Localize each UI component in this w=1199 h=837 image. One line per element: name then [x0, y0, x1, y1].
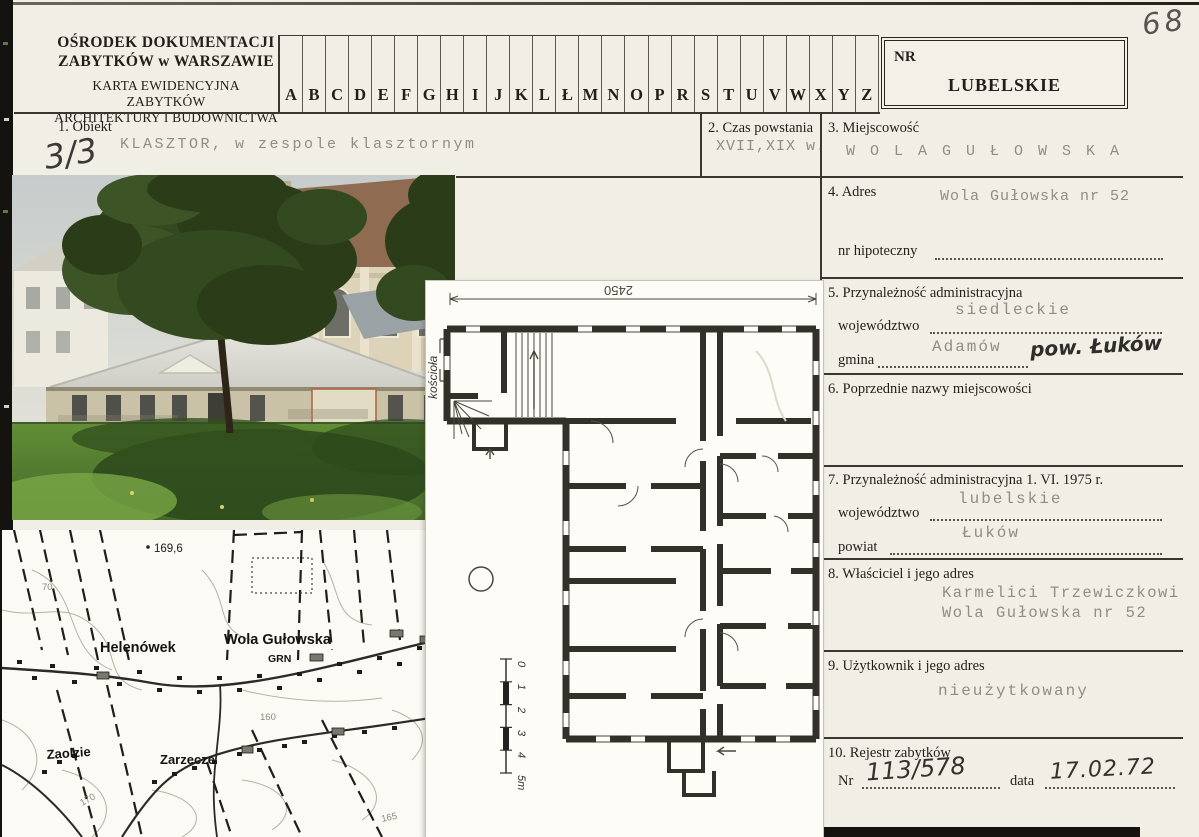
alphabet-letter: R — [672, 36, 695, 112]
field3-value: W O L A G U Ł O W S K A — [846, 143, 1122, 160]
alphabet-letter: L — [533, 36, 556, 112]
field6-rule — [820, 465, 1183, 467]
location-map: 169,6 70 160 170 165 Helenówek Wola Guło… — [2, 530, 437, 837]
alphabet-letter: M — [579, 36, 602, 112]
field10-data-dots — [1045, 787, 1175, 789]
field10-nr-value: 113/578 — [865, 752, 966, 787]
map-label-zarzecze: Zarzecze — [160, 752, 215, 767]
alphabet-letter: Z — [856, 36, 879, 112]
field6-label: 6. Poprzednie nazwy miejscowości — [828, 381, 1032, 398]
alphabet-letter: J — [487, 36, 510, 112]
map-spot-height: 169,6 — [154, 543, 183, 555]
plan-scale-bar: 0 1 2 3 4 5m — [500, 659, 527, 790]
alphabet-letter: I — [464, 36, 487, 112]
map-contour-70: 70 — [42, 582, 53, 593]
photo-lawn — [12, 418, 455, 520]
field1-value: KLASZTOR, w zespole klasztornym — [120, 136, 477, 153]
map-roads — [2, 640, 437, 837]
field7-label: 7. Przynależność administracyjna 1. VI. … — [828, 472, 1103, 489]
field7-powiat-label: powiat — [838, 539, 877, 556]
handwritten-page-number: 68 — [1140, 2, 1189, 41]
map-contour-165: 165 — [380, 811, 398, 825]
alphabet-letter: N — [602, 36, 625, 112]
plan-scale-0: 0 — [515, 661, 527, 668]
institution-line2: ZABYTKÓW w WARSZAWIE — [53, 52, 279, 71]
plan-scale-5m: 5m — [515, 775, 527, 790]
alphabet-letter: H — [441, 36, 464, 112]
plan-scan-crease — [756, 351, 786, 421]
region-name: LUBELSKIE — [882, 75, 1127, 96]
alphabet-letter: U — [741, 36, 764, 112]
field7-rule — [820, 558, 1183, 560]
alphabet-letter: O — [625, 36, 648, 112]
alphabet-letter: B — [303, 36, 326, 112]
card-type-line1: KARTA EWIDENCYJNA ZABYTKÓW — [53, 78, 279, 110]
alphabet-letter: W — [787, 36, 810, 112]
plan-door-arcs — [591, 421, 788, 651]
alphabet-letter: P — [649, 36, 672, 112]
alphabet-letter: T — [718, 36, 741, 112]
map-spot-height-dot — [146, 545, 150, 549]
field10-nr-dots — [862, 787, 1000, 789]
plan-windows — [442, 324, 821, 744]
field3-label: 3. Miejscowość — [828, 120, 919, 137]
nr-region-box: NR LUBELSKIE — [881, 37, 1128, 109]
field9-value: nieużytkowany — [938, 682, 1089, 700]
plan-scale-3: 3 — [515, 730, 527, 737]
field8-rule — [820, 650, 1183, 652]
field5-gmina-value: Adamów — [932, 338, 1002, 356]
field4-rule — [820, 277, 1183, 279]
plan-circle-symbol — [469, 567, 493, 591]
alphabet-letter: D — [349, 36, 372, 112]
field7-woj-label: województwo — [838, 505, 919, 522]
field5-gmina-dots — [878, 366, 1028, 368]
row1-divider-a — [700, 114, 702, 177]
monastery-photograph — [12, 175, 455, 520]
plan-staircase — [516, 333, 552, 417]
scan-top-edge — [0, 2, 1199, 5]
alphabet-letter: A — [280, 36, 303, 112]
field2-value: XVII,XIX w. — [716, 138, 826, 155]
plan-side-note-koscial: kościoła — [426, 355, 440, 399]
field5-label: 5. Przynależność administracyjna — [828, 285, 1022, 302]
plan-scale-4: 4 — [515, 752, 527, 758]
plan-interior-walls — [447, 329, 816, 696]
field5-gmina-label: gmina — [838, 352, 874, 369]
map-illustration: 169,6 70 160 170 165 Helenówek Wola Guło… — [2, 530, 437, 837]
field9-label: 9. Użytkownik i jego adres — [828, 658, 985, 675]
alphabet-letter: E — [372, 36, 395, 112]
field5-woj-label: województwo — [838, 318, 919, 335]
alphabet-letter: G — [418, 36, 441, 112]
field5-rule — [820, 373, 1183, 375]
field10-data-label: data — [1010, 773, 1034, 790]
row1-bottom-rule — [456, 176, 1183, 178]
field4-label: 4. Adres — [828, 184, 876, 201]
nr-label: NR — [894, 49, 916, 66]
field4-value: Wola Gułowska nr 52 — [940, 188, 1130, 205]
map-label-zaolzie: Zaolzie — [46, 744, 91, 762]
alphabet-letter: X — [810, 36, 833, 112]
field5-woj-value: siedleckie — [955, 301, 1071, 319]
alphabet-letter: V — [764, 36, 787, 112]
map-contour-170: 170 — [78, 791, 97, 808]
field2-label: 2. Czas powstania — [708, 120, 813, 137]
field5-gmina-handwritten-note: pow. Łuków — [1029, 331, 1162, 362]
record-card-scan: OŚRODEK DOKUMENTACJI ZABYTKÓW w WARSZAWI… — [0, 0, 1199, 837]
field4-hipoteczny-dots — [935, 258, 1163, 260]
field10-nr-label: Nr — [838, 773, 853, 790]
photo-illustration — [12, 175, 455, 520]
field8-value-line2: Wola Gułowska nr 52 — [942, 604, 1147, 622]
map-label-wola-gulowska: Wola Gułowska — [224, 632, 332, 648]
alphabet-letter: Ł — [556, 36, 579, 112]
plan-scale-2: 2 — [515, 706, 527, 713]
field4-hipoteczny-label: nr hipoteczny — [838, 243, 917, 260]
header-bottom-rule — [14, 112, 880, 114]
plan-scale-1: 1 — [515, 684, 527, 690]
alphabet-letter: K — [510, 36, 533, 112]
alphabet-letter: F — [395, 36, 418, 112]
floor-plan-drawing: 2450 kościoła — [426, 281, 823, 837]
map-orchard-outline — [252, 558, 312, 593]
alphabet-letter: S — [695, 36, 718, 112]
field10-data-value: 17.02.72 — [1049, 754, 1156, 785]
field8-value-line1: Karmelici Trzewiczkowi — [942, 584, 1180, 602]
field7-powiat-value: Łuków — [962, 524, 1020, 542]
field7-powiat-dots — [890, 553, 1162, 555]
field9-rule — [820, 737, 1183, 739]
nr-box-inner-border — [884, 40, 1125, 106]
map-label-grn: GRN — [268, 653, 291, 665]
plan-corridor-walls — [703, 329, 720, 739]
field8-label: 8. Właściciel i jego adres — [828, 566, 974, 583]
floor-plan-sheet: 2450 kościoła — [425, 280, 824, 837]
handwritten-copy-number: 3/3 — [41, 130, 100, 177]
institution-line1: OŚRODEK DOKUMENTACJI — [53, 33, 279, 52]
alphabet-letter: Y — [833, 36, 856, 112]
plan-dimension-value: 2450 — [604, 283, 633, 298]
field7-woj-value: lubelskie — [958, 490, 1062, 508]
map-label-helenowek: Helenówek — [100, 640, 177, 656]
alphabet-index: A B C D E F G H I J K L Ł M N O P R S T … — [280, 35, 879, 112]
field7-woj-dots — [930, 519, 1162, 521]
alphabet-letter: C — [326, 36, 349, 112]
map-contour-160: 160 — [260, 712, 276, 723]
